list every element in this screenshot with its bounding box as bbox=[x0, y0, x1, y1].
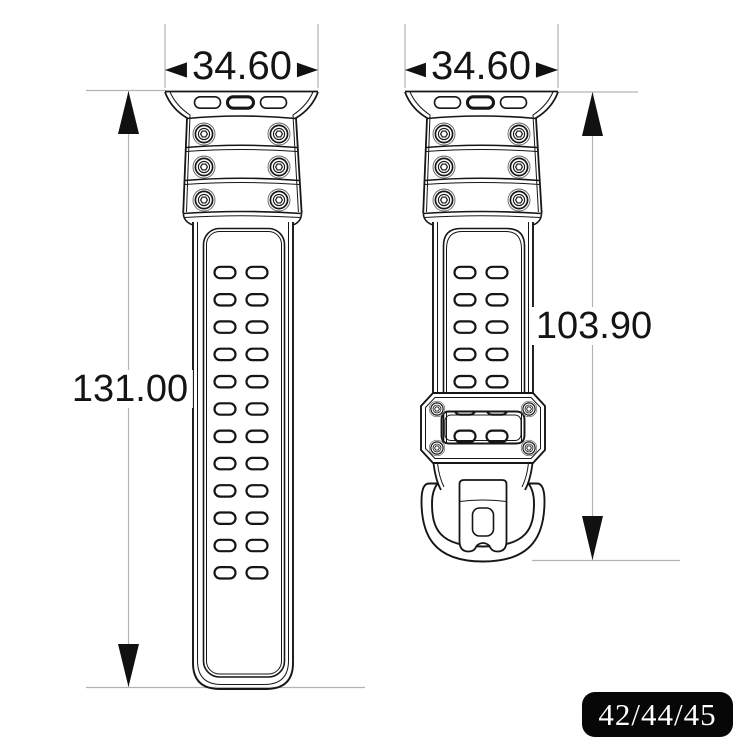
strap-hole bbox=[215, 403, 236, 414]
strap-hole bbox=[487, 349, 508, 360]
strap-hole bbox=[247, 267, 268, 278]
strap-hole bbox=[455, 349, 476, 360]
strap-hole bbox=[215, 349, 236, 360]
right-strap-holes bbox=[455, 267, 508, 442]
strap-hole bbox=[247, 513, 268, 524]
left-strap-holes bbox=[215, 267, 268, 579]
strap-hole bbox=[215, 458, 236, 469]
strap-hole bbox=[215, 267, 236, 278]
strap-hole bbox=[247, 376, 268, 387]
size-badge: 42/44/45 bbox=[582, 692, 733, 737]
strap-hole bbox=[455, 267, 476, 278]
screw-icon bbox=[193, 156, 215, 178]
right-strap-height-dimension: 103.90 bbox=[531, 307, 657, 345]
screw-icon bbox=[268, 189, 290, 211]
screw-icon bbox=[433, 123, 455, 145]
screw-icon bbox=[508, 123, 530, 145]
strap-hole bbox=[247, 349, 268, 360]
screw-icon bbox=[193, 189, 215, 211]
strap-hole bbox=[215, 321, 236, 332]
strap-hole bbox=[487, 294, 508, 305]
strap-hole bbox=[215, 567, 236, 578]
strap-hole bbox=[247, 321, 268, 332]
strap-hole bbox=[247, 431, 268, 442]
strap-hole bbox=[215, 294, 236, 305]
left-strap-width-dimension: 34.60 bbox=[187, 46, 297, 86]
strap-hole bbox=[215, 485, 236, 496]
left-lug-connector bbox=[165, 92, 318, 226]
right-lug-connector bbox=[405, 92, 558, 226]
screw-icon bbox=[433, 189, 455, 211]
strap-hole bbox=[215, 376, 236, 387]
strap-hole bbox=[247, 458, 268, 469]
strap-hole bbox=[487, 267, 508, 278]
strap-hole bbox=[455, 294, 476, 305]
strap-keeper bbox=[421, 393, 545, 463]
strap-hole bbox=[215, 540, 236, 551]
right-strap-screws bbox=[433, 123, 530, 211]
screw-icon bbox=[268, 156, 290, 178]
strap-hole bbox=[247, 294, 268, 305]
strap-hole bbox=[247, 567, 268, 578]
strap-hole bbox=[247, 403, 268, 414]
strap-hole bbox=[215, 513, 236, 524]
strap-hole bbox=[247, 540, 268, 551]
buckle-tongue bbox=[460, 480, 507, 552]
screw-icon bbox=[268, 123, 290, 145]
screw-icon bbox=[508, 189, 530, 211]
strap-hole bbox=[455, 321, 476, 332]
left-strap-height-dimension: 131.00 bbox=[67, 370, 193, 408]
screw-icon bbox=[508, 156, 530, 178]
right-strap-width-dimension: 34.60 bbox=[426, 46, 536, 86]
strap-hole bbox=[487, 321, 508, 332]
strap-hole bbox=[455, 376, 476, 387]
left-strap-screws bbox=[193, 123, 290, 211]
technical-drawing-canvas: 34.60 34.60 131.00 103.90 42/44/45 bbox=[0, 0, 750, 750]
screw-icon bbox=[193, 123, 215, 145]
strap-hole bbox=[247, 485, 268, 496]
strap-hole bbox=[215, 431, 236, 442]
strap-hole bbox=[487, 376, 508, 387]
screw-icon bbox=[433, 156, 455, 178]
size-badge-label: 42/44/45 bbox=[598, 697, 716, 733]
